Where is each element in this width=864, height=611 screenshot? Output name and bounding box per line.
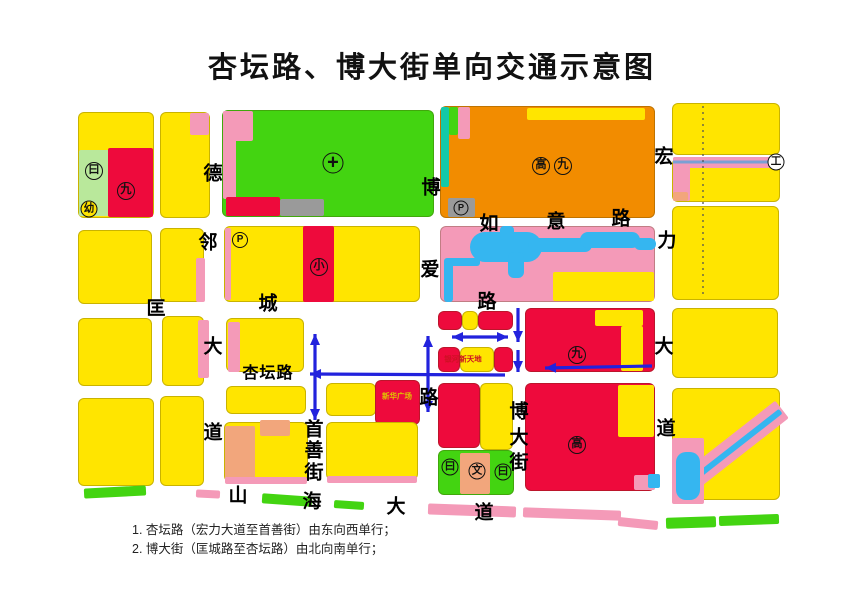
shanhai-avenue-char: 大	[386, 492, 405, 519]
shoushan-street-char: 街	[304, 458, 323, 485]
hongli-avenue-char: 宏	[654, 142, 673, 169]
hospital-cross-icon: +	[323, 153, 344, 174]
xinhua-plaza-label: 新华广场	[382, 391, 412, 402]
kindergarten-icon: 幼	[81, 201, 98, 218]
ruyi-road-char: 路	[611, 204, 630, 231]
boda-southbound-arrow-head	[513, 331, 523, 342]
lane-two-way-arrow-head	[452, 332, 463, 342]
lane-two-way-arrow-head	[497, 332, 508, 342]
yinhe-xintiandi-label: 银河新天地	[444, 354, 482, 365]
high-school-icon: 高	[568, 436, 586, 454]
delin-avenue-char: 大	[203, 332, 222, 359]
ruyi-road-char: 意	[546, 207, 565, 234]
hongli-avenue-char: 力	[657, 226, 676, 253]
parking-icon: P	[232, 232, 248, 248]
boai-two-way-arrow-head	[423, 336, 433, 347]
traffic-map: 德邻大道首善街博爱路博大街宏力大道如意路匡城路杏坛路山海大道银河新天地新华广场曰…	[0, 0, 864, 611]
school-icon: 曰	[85, 162, 103, 180]
kuangcheng-road-char: 路	[477, 287, 496, 314]
hongli-avenue-char: 大	[654, 332, 673, 359]
school-icon: 曰	[495, 464, 512, 481]
kuangcheng-road-char: 匡	[146, 294, 165, 321]
high-school-icon: 高	[532, 157, 550, 175]
boda-street-char: 博	[509, 397, 528, 424]
kuangcheng-road-char: 城	[258, 289, 277, 316]
nine-year-school-icon: 九	[117, 182, 135, 200]
hongli-avenue-char: 道	[656, 414, 675, 441]
nine-year-school-icon: 九	[568, 346, 586, 364]
delin-avenue-char: 德	[203, 159, 222, 186]
xingtan-westbound-arrow	[545, 366, 652, 368]
culture-icon: 文	[469, 463, 486, 480]
boda-street-char: 大	[509, 423, 528, 450]
shanhai-avenue-char: 海	[302, 487, 321, 514]
boai-road-char: 博	[421, 173, 440, 200]
xingtan-road-label: 杏坛路	[242, 359, 293, 383]
boai-road-char: 爱	[420, 255, 439, 282]
delin-avenue-char: 邻	[198, 228, 217, 255]
shanhai-avenue-char: 山	[228, 481, 247, 508]
delin-avenue-char: 道	[203, 418, 222, 445]
nine-year-school-icon: 九	[554, 157, 572, 175]
parking-icon: P	[454, 201, 469, 216]
gate-icon: 工	[768, 154, 785, 171]
boai-road-char: 路	[419, 383, 438, 410]
school-icon: 曰	[442, 459, 459, 476]
ruyi-road-char: 如	[479, 209, 498, 236]
xingtan-westbound-arrow-head	[545, 363, 556, 373]
traffic-diagram-page: 杏坛路、博大街单向交通示意图 德邻大道首善街博爱路博大街宏力大道如意路匡城路杏坛…	[0, 0, 864, 611]
boda-street-char: 街	[509, 448, 528, 475]
primary-school-icon: 小	[310, 258, 328, 276]
shoushan-two-way-arrow-head	[310, 334, 320, 345]
arrow-layer	[0, 0, 864, 611]
shanhai-avenue-char: 道	[474, 498, 493, 525]
boda-southbound-arrow-head	[513, 361, 523, 372]
xingtan-westbound-arrow	[310, 374, 505, 375]
